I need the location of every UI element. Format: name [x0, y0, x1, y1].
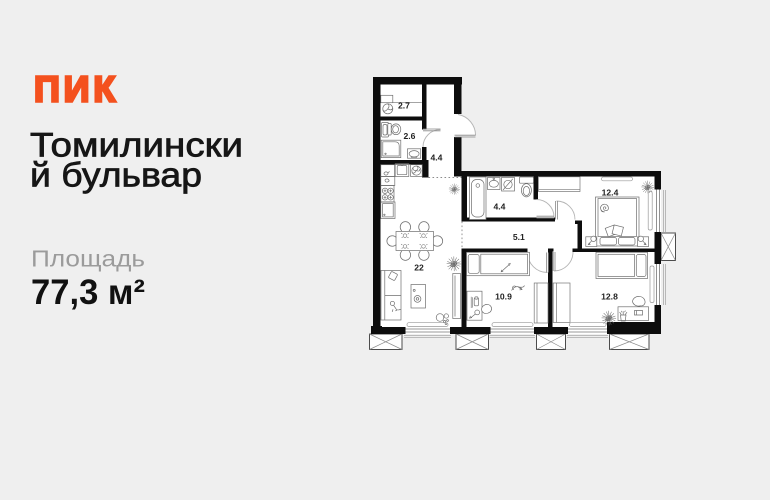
- svg-text:77,3 м²: 77,3 м²: [31, 273, 145, 312]
- svg-text:2.7: 2.7: [398, 101, 410, 111]
- svg-text:ПИК: ПИК: [34, 69, 119, 110]
- svg-text:5.1: 5.1: [513, 232, 525, 242]
- svg-text:12.8: 12.8: [601, 292, 618, 302]
- svg-text:4.4: 4.4: [431, 153, 443, 163]
- svg-text:2.6: 2.6: [404, 131, 416, 141]
- svg-text:й бульвар: й бульвар: [30, 157, 202, 195]
- svg-text:10.9: 10.9: [495, 292, 512, 302]
- svg-text:4.4: 4.4: [494, 202, 506, 212]
- svg-text:12.4: 12.4: [602, 188, 619, 198]
- svg-text:Площадь: Площадь: [31, 246, 145, 272]
- svg-text:22: 22: [414, 263, 424, 273]
